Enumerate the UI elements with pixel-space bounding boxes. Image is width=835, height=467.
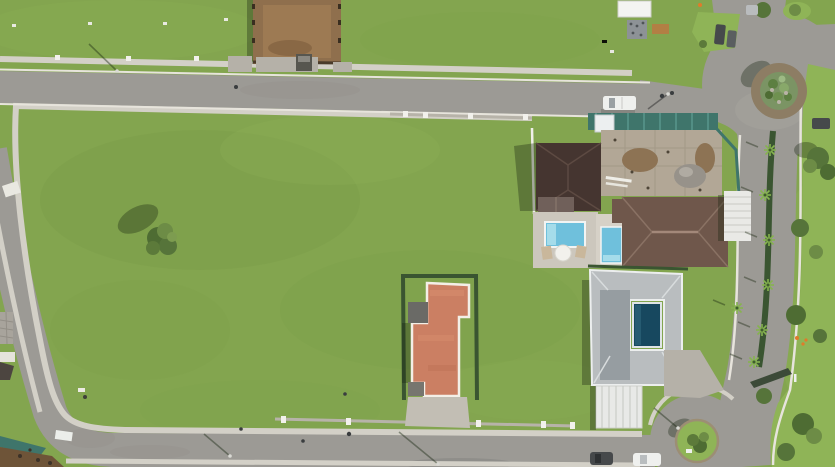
lounger — [575, 245, 587, 259]
shaded-patio-nw — [408, 302, 428, 323]
site-shed — [595, 115, 614, 132]
lawn-pole — [794, 374, 797, 382]
construction-dirt-lot — [247, 0, 341, 72]
roundabout-east-exit — [790, 24, 835, 62]
shaded-patio-sw — [408, 382, 424, 396]
house-brown-roof — [596, 191, 751, 268]
carport-c — [596, 386, 642, 428]
driveway-pad-1 — [228, 56, 252, 72]
white-pickup — [601, 96, 636, 113]
small-sign — [78, 388, 85, 392]
red-house-driveway — [405, 397, 470, 428]
patio-umbrella — [555, 245, 571, 261]
white-tent — [618, 1, 651, 17]
lounger — [541, 246, 553, 260]
gray-car-north-exit — [726, 30, 737, 48]
white-pad — [0, 352, 15, 362]
dark-car-east-exit — [812, 118, 830, 129]
small-object — [83, 395, 87, 399]
aerial-photo-canvas — [0, 0, 835, 467]
construction-foundation — [588, 113, 739, 196]
dark-car-north-exit — [714, 24, 726, 45]
aerial-photo — [0, 0, 835, 467]
island-sign — [686, 449, 692, 453]
dark-car-bottom — [590, 452, 613, 465]
silver-car-top — [746, 5, 758, 15]
white-car-bottom — [633, 453, 661, 466]
driveway-pad-2 — [333, 62, 352, 72]
lumber-stack — [652, 24, 669, 34]
